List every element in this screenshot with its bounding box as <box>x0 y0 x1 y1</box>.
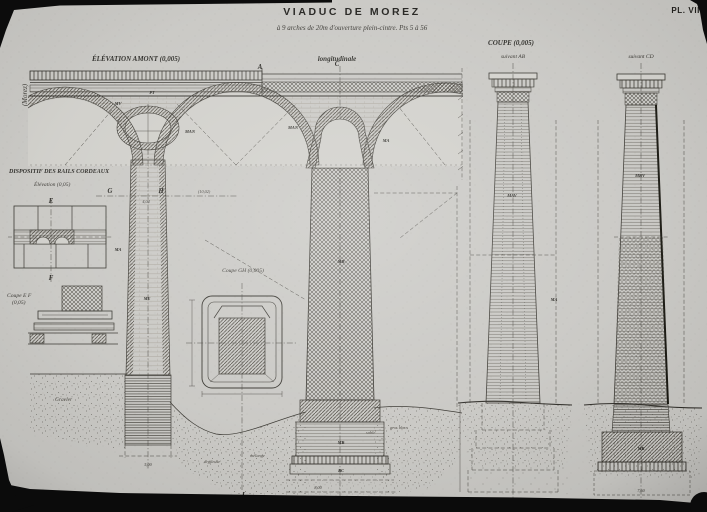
scan-artifacts <box>0 0 707 512</box>
scanned-plate: Gravier argileuse mélange sable gros blo… <box>0 0 707 512</box>
plate-drawing: Gravier argileuse mélange sable gros blo… <box>0 0 707 512</box>
